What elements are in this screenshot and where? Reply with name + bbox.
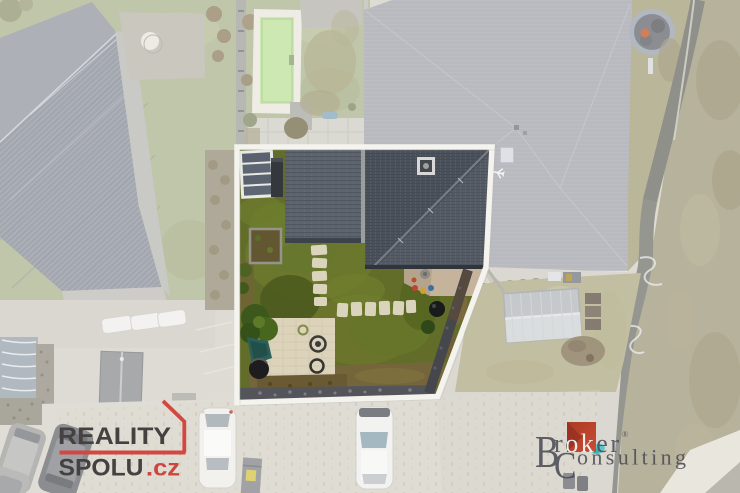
- svg-text:.cz: .cz: [146, 455, 180, 481]
- svg-text:SPOLU: SPOLU: [59, 455, 144, 482]
- svg-text:REALITY: REALITY: [58, 423, 171, 450]
- svg-text:®: ®: [622, 430, 628, 439]
